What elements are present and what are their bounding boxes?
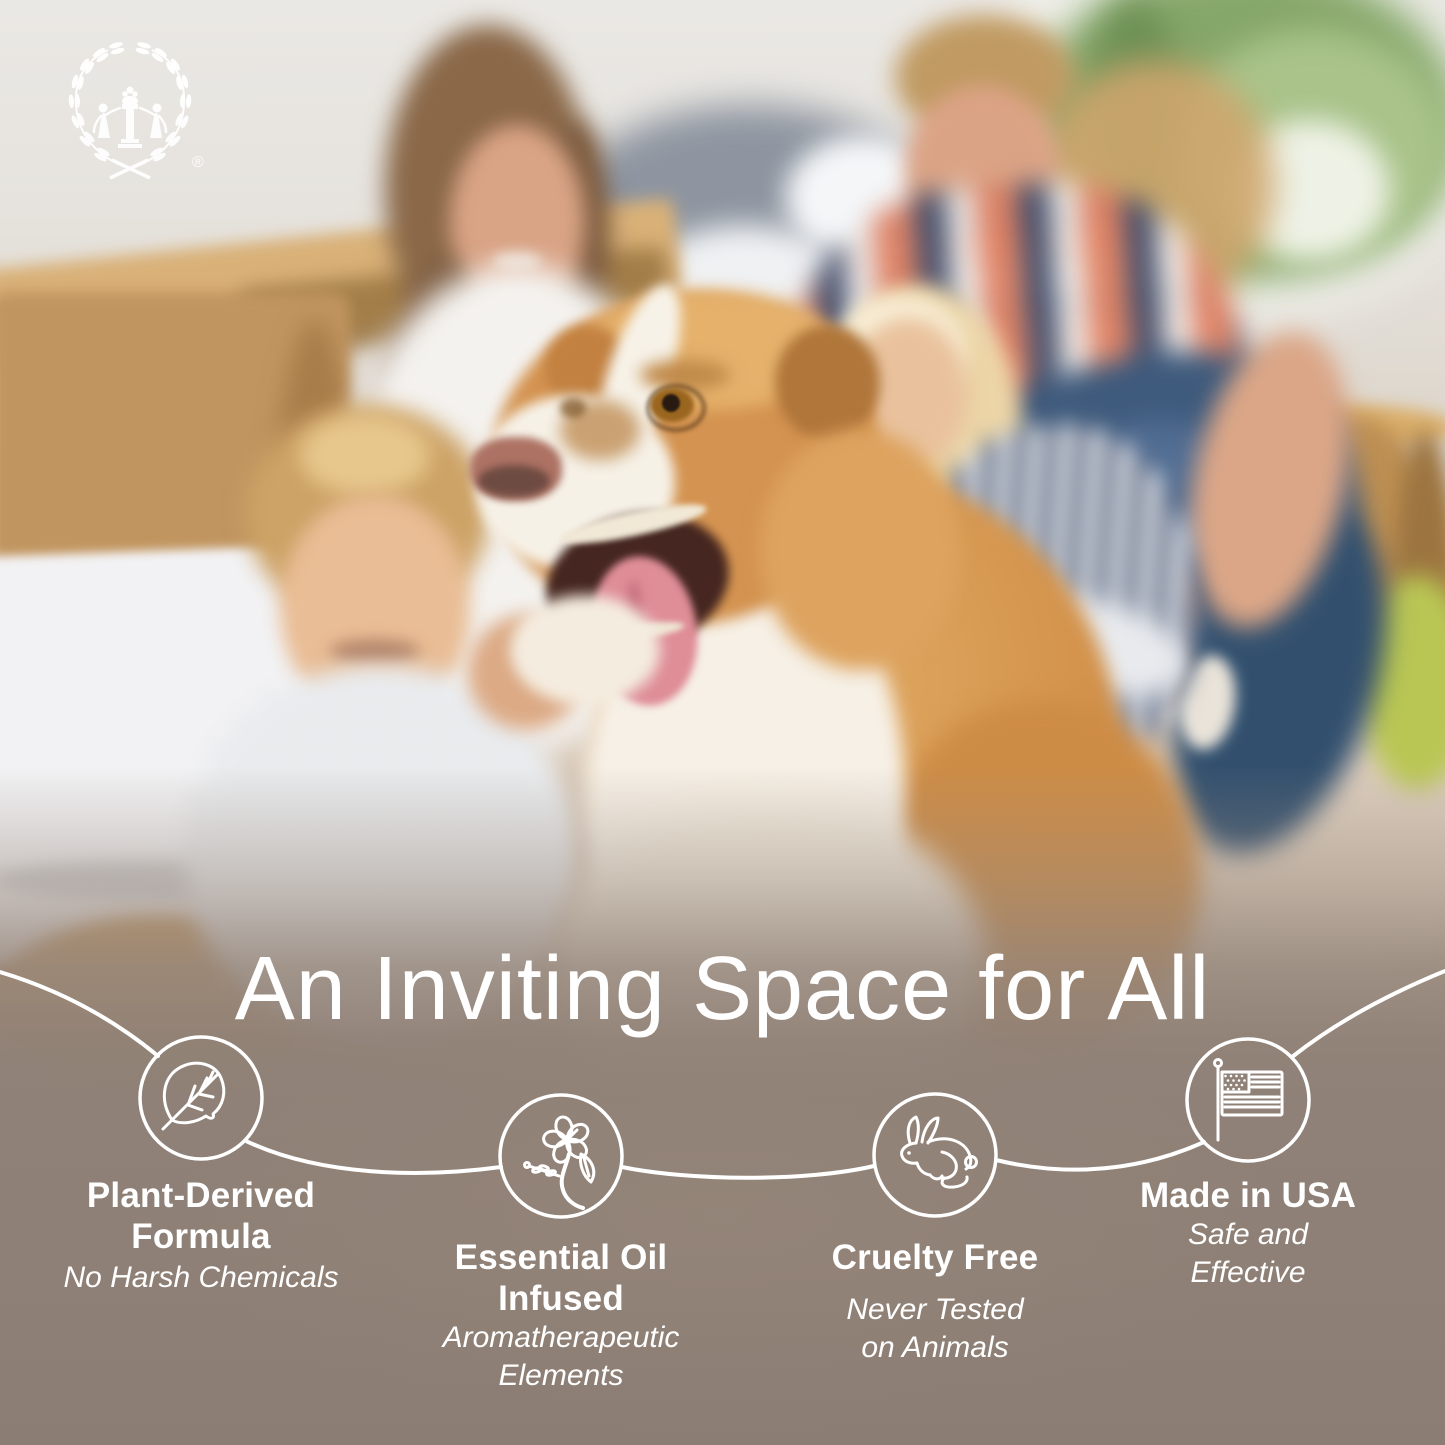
product-marketing-image: An Inviting Space for All	[0, 0, 1445, 1445]
feature-subtitle: Never Tested on Animals	[785, 1291, 1085, 1367]
rabbit-icon	[902, 1117, 977, 1187]
feature-cruelty-free: Cruelty Free Never Tested on Animals	[785, 1237, 1085, 1367]
feature-made-in-usa: Made in USA Safe and Effective	[1123, 1175, 1373, 1292]
feature-title: Cruelty Free	[785, 1237, 1085, 1278]
feature-title: Plant-Derived Formula	[41, 1175, 361, 1257]
feature-title: Made in USA	[1123, 1175, 1373, 1216]
feature-plant-derived: Plant-Derived Formula No Harsh Chemicals	[41, 1175, 361, 1297]
flag-stars	[1224, 1075, 1246, 1091]
flower-icon	[525, 1115, 594, 1208]
brand-laurel-logo	[50, 38, 210, 188]
registered-trademark: ®	[192, 154, 204, 172]
leaf-icon	[163, 1063, 224, 1129]
feature-essential-oil: Essential Oil Infused Aromatherapeutic E…	[401, 1237, 721, 1395]
feature-title: Essential Oil Infused	[401, 1237, 721, 1319]
feature-subtitle: Aromatherapeutic Elements	[401, 1319, 721, 1395]
usa-flag-icon	[1215, 1060, 1283, 1141]
feature-subtitle: Safe and Effective	[1123, 1216, 1373, 1292]
feature-subtitle: No Harsh Chemicals	[41, 1259, 361, 1297]
logo-column	[118, 87, 142, 149]
